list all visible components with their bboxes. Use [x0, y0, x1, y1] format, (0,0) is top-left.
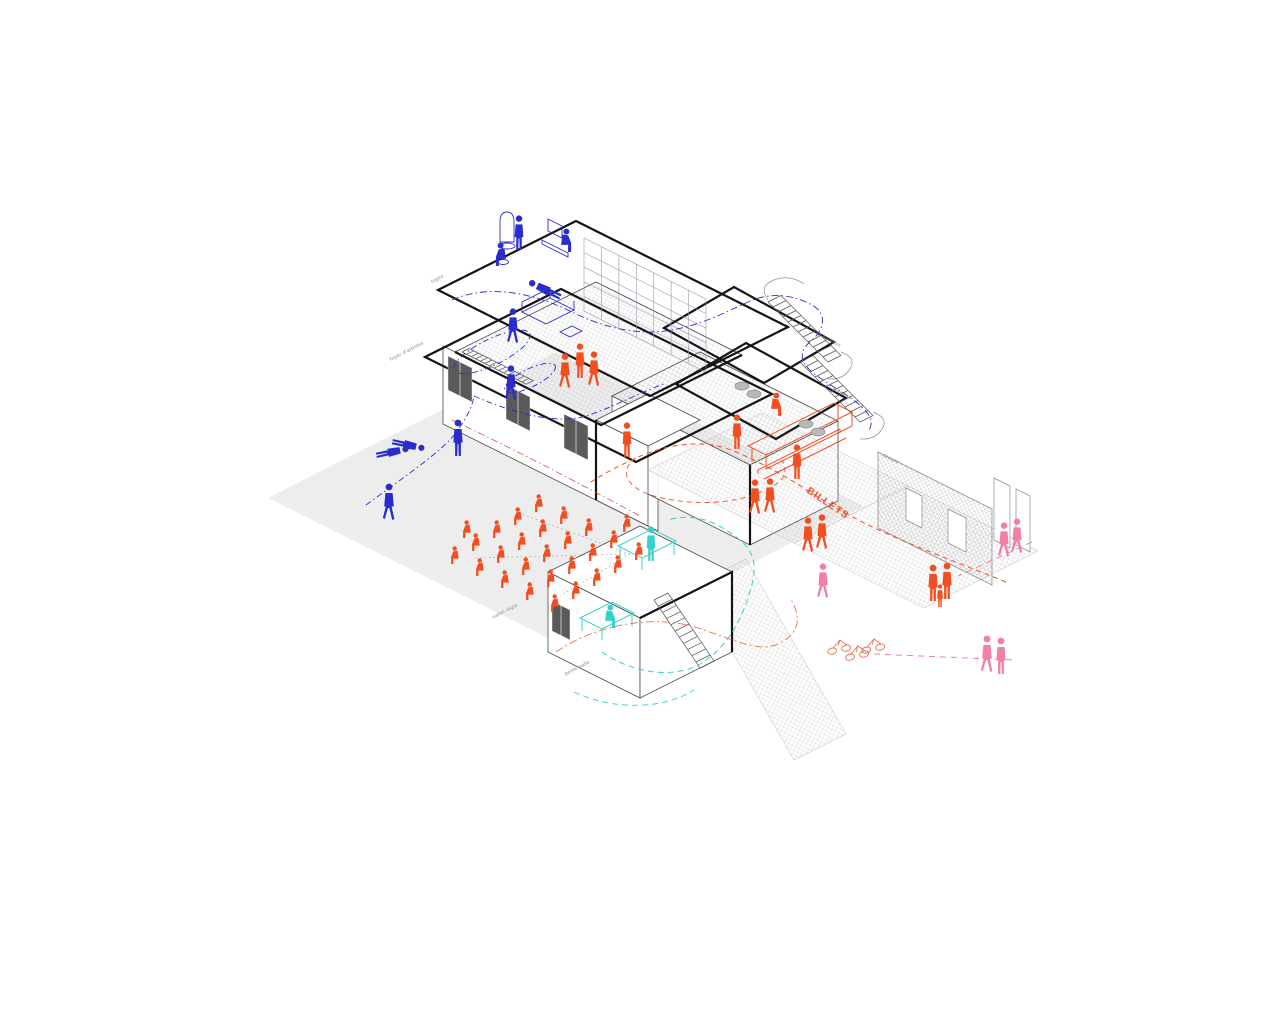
- landing-arc-top: [764, 278, 804, 300]
- person-blue-stand: [515, 215, 524, 250]
- room-label: foyer d'artistes: [389, 340, 425, 362]
- person-blue-sit: [561, 229, 571, 252]
- pouf-stool: [811, 428, 825, 436]
- circulation-path-pink: [874, 654, 1014, 660]
- person-pink-stand: [996, 638, 1005, 674]
- mirror-arch: [500, 212, 514, 242]
- room-label: loges: [430, 273, 445, 285]
- pouf-stool: [735, 382, 749, 390]
- diagram-canvas: logesfoyer d'artistes+2 bureaux+1 bureau…: [0, 0, 1280, 1024]
- person-pink-walk: [817, 563, 828, 598]
- stool: [498, 260, 509, 265]
- bicycle: [828, 640, 851, 654]
- person-pink-walk: [981, 636, 993, 672]
- pouf-stool: [747, 390, 761, 398]
- person-blue-sit: [496, 243, 506, 266]
- room-label: +1 bureaux: [824, 383, 852, 401]
- axonometric-diagram: logesfoyer d'artistes+2 bureaux+1 bureau…: [0, 0, 1280, 1024]
- staircase: [768, 296, 841, 363]
- pouf-stool: [799, 420, 813, 428]
- bicycle-racks: [828, 639, 885, 660]
